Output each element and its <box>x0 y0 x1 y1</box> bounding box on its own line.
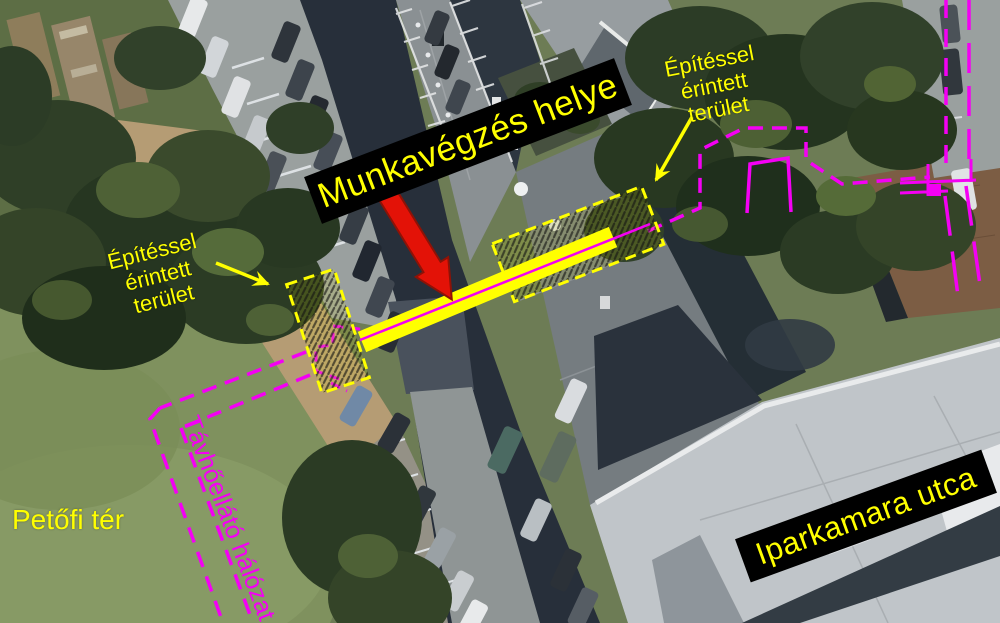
aerial-photo-background <box>0 0 1000 623</box>
construction-site-map: Munkavégzés helye Iparkamara utca Építés… <box>0 0 1000 623</box>
